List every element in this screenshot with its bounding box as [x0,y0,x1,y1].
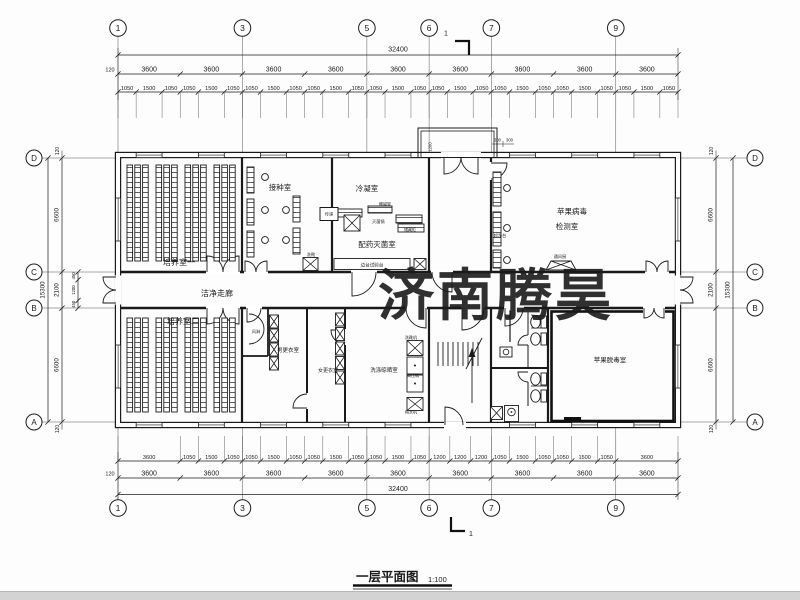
culture-rack [201,165,207,261]
dim-label: D [752,154,758,163]
dim-label: 3 [240,23,245,33]
dim-edge-right-top: 120 [709,147,715,156]
room-label-cultivation1: 培养室一 [163,257,195,267]
dim-label: 1500 [205,455,217,461]
dim-label: 1500 [392,86,404,92]
dim-label: 1 [116,23,121,33]
drawing-title: 一层平面图 [356,570,419,584]
room-label-condensation: 冷凝室 [356,183,379,193]
dim-label: 1050 [289,455,301,461]
equip-label-boot-washer: 洗靴机 [405,334,417,340]
culture-rack [201,318,207,412]
dim-label: 1200 [454,455,466,461]
bottom-scrollbar[interactable] [0,591,800,600]
dim-edge-right-bottom: 120 [709,425,715,434]
dim-canopy-right: 300 [506,138,514,143]
dim-label: 2100 [708,283,715,297]
dim-label: 1500 [392,455,404,461]
dim-overall-width-top: 32400 [388,47,408,54]
dim-label: 3600 [204,470,220,477]
dim-label: 3600 [577,66,593,73]
room-label-cultivation2: 培养室二 [167,316,199,326]
dim-label: 3600 [266,470,282,477]
dim-label: 6600 [54,358,61,372]
equip-label-autoclave: 高压锅 [407,372,419,378]
dim-label: 1050 [432,86,444,92]
dim-label: 3 [240,503,245,513]
dim-label: 1500 [143,86,155,92]
dim-label: 3600 [452,470,468,477]
section-mark-bottom: 1 [469,531,473,538]
dim-label: 1050 [556,86,568,92]
culture-rack [185,318,191,412]
section-mark-top: 1 [444,31,448,38]
dim-label: 1050 [538,455,550,461]
room-label-virus-test-2: 检测室 [556,221,579,231]
room-label-men-change: 男更衣室 [277,346,300,354]
dim-label: 1200 [71,285,76,295]
dim-label: 9 [613,23,618,33]
dim-label: 1050 [245,86,257,92]
dim-label: 3600 [143,455,155,461]
equip-label-water-purifier: 纯水机 [405,409,417,415]
dim-label: 1050 [538,86,550,92]
room-label-washing: 洗涤晾晒室 [370,366,398,374]
dim-edge-left-top: 120 [55,147,61,156]
culture-rack [222,165,228,261]
room-label-women-change: 女更衣室 [318,367,338,374]
culture-rack [135,165,141,261]
dim-label: 3600 [515,66,531,73]
dim-label: 450 [71,300,76,308]
title-block: 一层平面图 1:100 [353,570,452,589]
dim-label: 1050 [308,455,320,461]
dim-label: 1050 [352,86,364,92]
dim-label: 1050 [619,86,631,92]
culture-rack [127,165,133,261]
dim-canopy-depth: 1200 [428,142,433,152]
dim-label: 1050 [245,455,257,461]
dim-label: 1050 [494,86,506,92]
culture-rack [156,318,162,412]
culture-rack [135,318,141,412]
culture-rack [185,165,191,261]
entrance-door-right [461,157,478,174]
dim-label: 1050 [600,455,612,461]
dim-label: 3600 [452,66,468,73]
equip-label-air-shower: 风淋 [252,328,261,335]
dim-label: 1500 [516,86,528,92]
culture-rack [164,165,170,261]
room-label-preparation: 配药灭菌室 [358,239,396,249]
dim-label: 1050 [600,86,612,92]
dim-edge-bottom: 120 [105,472,114,478]
equip-label-sterilizer: 灭菌锅 [372,218,385,225]
room-label-inoculation: 接种室 [269,182,292,192]
dim-label: 450 [71,272,76,280]
culture-rack [172,165,178,261]
dim-label: 3600 [141,66,157,73]
culture-rack [214,165,220,261]
dim-edge-left-bottom: 120 [55,425,61,434]
dim-label: 1050 [494,455,506,461]
culture-rack [230,318,236,412]
dim-label: 6600 [54,208,61,222]
dim-label: 1050 [165,86,177,92]
dim-label: 5 [365,23,370,33]
wall-block [564,417,581,422]
watermark: 济南腾昊 [378,264,614,327]
equip-label-acid-rack: 酸碱架 [379,201,391,207]
dim-label: 1050 [183,86,195,92]
dim-label: 1200 [475,455,487,461]
room-label-virus-test-1: 苹果病毒 [557,206,587,216]
culture-rack [172,318,178,412]
dim-label: 1050 [663,86,675,92]
dim-label: 1500 [516,455,528,461]
dim-label: A [31,418,37,427]
entrance-door-left [444,157,461,174]
toilet [541,373,547,385]
dim-label: 1050 [289,86,301,92]
culture-rack [193,318,199,412]
dim-label: 3600 [328,66,344,73]
dim-label: 1500 [641,86,653,92]
culture-rack [222,318,228,412]
dim-label: 1050 [183,455,195,461]
dim-label: 9 [613,503,618,513]
dim-label: 3600 [641,455,653,461]
dim-label: 1500 [205,86,217,92]
dim-label: 1050 [556,455,568,461]
dim-label: 1050 [308,86,320,92]
dim-label: 1500 [330,86,342,92]
floor-plan-page: 1050150010501050150010501050150010501050… [0,0,800,600]
dim-label: 1050 [370,86,382,92]
dim-label: 2100 [54,283,61,297]
dim-label: 1500 [267,455,279,461]
dim-label: 1500 [454,86,466,92]
culture-rack [230,165,236,261]
toilet [541,333,547,345]
equip-label-cabinet: 储藏柜 [404,226,416,232]
dim-label: C [752,268,758,277]
dim-label: 1050 [476,86,488,92]
floor-plan-canvas: 1050150010501050150010501050150010501050… [0,0,800,600]
equip-label-clean-bench: 超净台 [494,232,507,239]
culture-rack [214,318,220,412]
dim-label: 1500 [267,86,279,92]
dim-label: 1050 [414,86,426,92]
room-label-detox: 苹果脱毒室 [594,355,627,364]
dim-label: A [752,418,758,427]
dim-label: 1050 [352,455,364,461]
dim-label: 3600 [141,470,157,477]
dim-label: 3600 [639,470,655,477]
dim-label: 1050 [121,86,133,92]
dim-label: 1050 [227,86,239,92]
dim-label: 3600 [390,66,406,73]
culture-rack [156,165,162,261]
dim-label: 1 [116,503,121,513]
equip-label-boot-wash: 洗靴 [307,251,316,258]
dim-overall-width-bottom: 32400 [388,486,408,493]
drawing-scale: 1:100 [428,575,447,584]
dim-label: 3600 [577,470,593,477]
dim-label: 6 [427,503,432,513]
dim-canopy-left: 300 [494,138,502,143]
dim-label: B [31,304,36,313]
dim-label: 1050 [227,455,239,461]
dim-overall-height-right: 15300 [725,281,732,299]
dim-label: 1050 [370,455,382,461]
dim-label: 3600 [390,470,406,477]
dim-label: 7 [489,23,494,33]
dim-label: 1500 [578,455,590,461]
dim-label: 1050 [414,455,426,461]
dim-overall-height-left: 15300 [40,281,47,299]
dim-label: 3600 [639,66,655,73]
dim-label: 3600 [515,470,531,477]
culture-rack [143,318,149,412]
dim-label: 1500 [330,455,342,461]
culture-rack [164,318,170,412]
culture-rack [143,165,149,261]
dim-label: 6600 [708,358,715,372]
dim-label: 6600 [708,208,715,222]
dim-label: 6 [427,23,432,33]
dim-edge-top: 120 [105,68,114,74]
toilet [541,390,547,402]
dim-label: 1200 [433,455,445,461]
equip-label-transfer: 传递 [325,211,334,218]
dim-label: 5 [365,503,370,513]
dim-label: 7 [489,503,494,513]
culture-rack [193,165,199,261]
room-label-corridor: 洁净走廊 [201,288,233,298]
dim-label: 1500 [578,86,590,92]
dim-label: 3600 [204,66,220,73]
dim-label: 3600 [266,66,282,73]
dim-label: B [752,304,757,313]
dim-label: C [31,268,37,277]
dim-label: D [31,154,37,163]
culture-rack [127,318,133,412]
dim-label: 3600 [328,470,344,477]
equip-label-fume-hood: 通风厨 [554,253,567,260]
